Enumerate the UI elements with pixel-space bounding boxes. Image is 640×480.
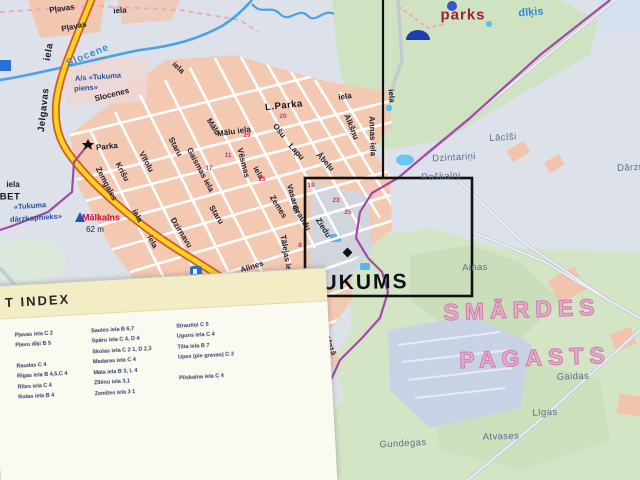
poi-label-tukuma-piens-2: piens» [74,83,98,92]
street-label-krisu: Krišu [114,161,131,183]
coop-label-tukuma: «Tukuma [14,201,47,211]
street-label-iela: iela [113,7,127,16]
house-number: 15 [258,177,265,184]
settlement-label-gundegas: Gundegas [379,438,426,450]
street-label-staru-2: Staru [207,204,225,226]
index-column-2: Saules iela B 6,7Spāru iela C 4, D 4Skol… [91,323,154,399]
street-label-l-parka: L.Parka [265,99,304,112]
house-number: 19 [307,183,314,190]
street-label-plavas-2: Pļavas [61,20,87,33]
settlement-label-lacisi: Lācīši [489,133,517,144]
house-number: 8 [298,243,302,250]
park-label: parks [440,8,485,23]
street-label-iela: iela [338,92,352,102]
peak-elevation: 62 m [86,226,104,234]
street-label-abelu: Ābeļu [314,151,335,173]
index-column-1: Pļavas iela C 2Pļavu dīķi B 5Raudas C 4R… [15,328,69,404]
house-number: 23 [332,198,339,205]
street-label-iela: iela [145,234,158,250]
region-name-smardes: SMĀRDES [443,296,601,324]
street-label-vasaras: Vasaras [285,183,301,214]
street-label-vitolu: Vītolu [137,150,154,173]
street-label-ziedu: Ziedu [314,217,332,239]
road-label-jelgavas: Jelgavas [37,88,51,133]
settlement-label-raskalni: Raškalni [421,171,461,183]
street-label-annas: Annas iela [367,116,376,156]
river-label-slocene: Slocene [65,43,111,69]
edge-fragment-iela: iela [6,181,19,189]
map-photo: PļavasielaPļavasielaJelgavasSloceneA/s «… [0,0,640,480]
settlement-label-darzni: Dārzni [617,162,640,173]
house-number: 11 [225,153,232,160]
index-columns: Pļavas iela C 2Pļavu dīķi B 5Raudas C 4R… [0,301,332,405]
coop-label-darzkopnieks: dārzkopnieks» [10,212,63,223]
street-label-plavas: Pļavas [49,3,75,14]
pond-label: dīķis [518,7,544,20]
street-label-lapu: Lapu [287,142,306,161]
peak-label-malkalns: Mālkalns [82,214,120,223]
settlement-label-dzintarini: Dzintariņi [432,152,476,164]
street-index-panel: T INDEX Pļavas iela C 2Pļavu dīķi B 5Rau… [0,267,337,480]
street-label-dzirnavu: Dzirnavu [169,217,194,250]
street-label-staru: Staru [167,136,184,158]
street-label-osu: Ošu [271,122,287,139]
street-label-parka: Parka [96,142,119,152]
street-label-vesmas: Vēsmas [235,147,250,178]
settlement-label-ainas: Ainas [462,263,488,273]
street-label-zemgales: Zemgales [94,166,118,202]
settlement-label-ligas: Līgas [532,408,558,418]
index-entry: Pilskalna iela C 4 [179,370,235,384]
house-number: 25 [344,210,351,217]
road-label-iela: iela [43,42,55,61]
street-label-iela: iela [386,89,395,103]
index-entry: Rotas iela B 4 [18,390,69,403]
settlement-label-gaidas: Gaidas [557,372,590,383]
street-label-iela: iela [130,208,143,224]
street-label-alksnu: Alkšņu [342,113,359,141]
index-title: T INDEX [5,291,71,310]
street-label-zemes: Zemes [268,194,288,220]
settlement-label-atvases: Atvases [483,432,520,443]
poi-label-tukuma-piens: A/s «Tukuma [75,72,122,83]
street-label-iela: iela [170,61,185,76]
house-number: 20 [279,114,286,121]
edge-fragment-bet: BET [0,192,20,202]
region-name-pagasts: PAGASTS [459,344,611,372]
index-column-3: Strautiņi C 5Uguns iela C 4Tilta iela B … [176,319,236,395]
house-number: 17 [205,166,212,173]
house-number: 29 [243,133,250,140]
street-label-slocenes: Slocenes [94,87,130,103]
